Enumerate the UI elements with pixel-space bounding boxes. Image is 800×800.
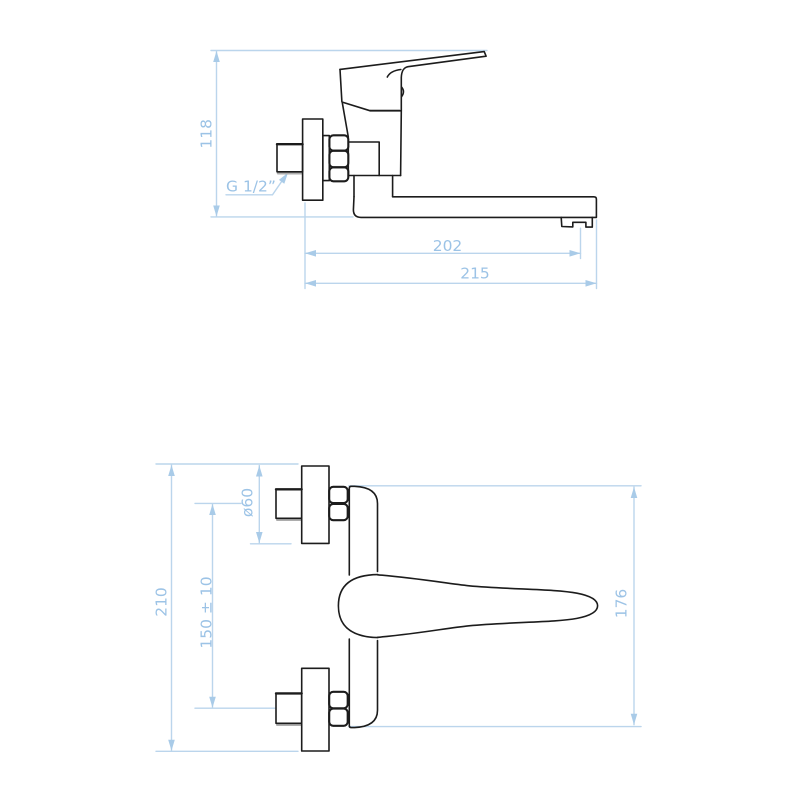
dim-height-118: 118 <box>198 119 216 149</box>
washer-side <box>323 136 330 181</box>
plan-view-faucet <box>276 466 598 751</box>
upper-mount <box>276 466 348 543</box>
dim-mount-spacing-150: 150 ± 10 <box>198 576 216 648</box>
dim-overall-length-215: 215 <box>460 265 490 283</box>
body-bar-top <box>349 486 377 575</box>
spout-neck <box>354 176 393 197</box>
spout <box>353 197 596 218</box>
wall-plate-upper <box>302 466 329 543</box>
hex-nut-upper-1 <box>329 487 348 503</box>
hex-nut-side <box>329 135 348 181</box>
thread-nipple-side <box>277 144 303 172</box>
thread-nipple-upper <box>276 489 302 518</box>
thread-nipple-lower <box>276 693 302 723</box>
lower-mount <box>276 668 348 751</box>
hex-nut-lower-1 <box>329 692 348 709</box>
dim-body-span-176: 176 <box>613 589 631 619</box>
plan-view-dimension-lines <box>156 464 641 751</box>
side-view-dimension-lines <box>211 51 597 289</box>
faucet-technical-drawing: 118 G 1/2” 202 215 <box>0 0 800 800</box>
plan-view: 210 150 ± 10 ø60 176 <box>153 464 641 751</box>
aerator <box>561 217 592 227</box>
handle-skirt <box>340 69 401 110</box>
dim-plate-diameter-60: ø60 <box>239 488 257 517</box>
body-left-edge <box>342 103 348 137</box>
mixer-body-plan <box>338 575 377 638</box>
dim-overall-height-210: 210 <box>153 587 171 617</box>
dim-spout-reach-202: 202 <box>433 237 463 255</box>
lever-handle <box>340 52 486 176</box>
hex-nut-lower-2 <box>329 709 348 726</box>
wall-plate-side <box>303 119 323 200</box>
side-view: 118 G 1/2” 202 215 <box>198 51 597 289</box>
hex-nut-upper-2 <box>329 504 348 520</box>
valve-block-side <box>348 142 379 176</box>
technical-drawing-page: 118 G 1/2” 202 215 <box>0 0 800 800</box>
body-bar-bottom <box>349 639 377 728</box>
wall-plate-lower <box>302 668 329 751</box>
lever-arc-detail <box>387 70 401 78</box>
side-view-faucet <box>277 52 596 228</box>
lever-handle-plan <box>378 575 598 638</box>
dim-thread-g12: G 1/2” <box>226 178 276 196</box>
